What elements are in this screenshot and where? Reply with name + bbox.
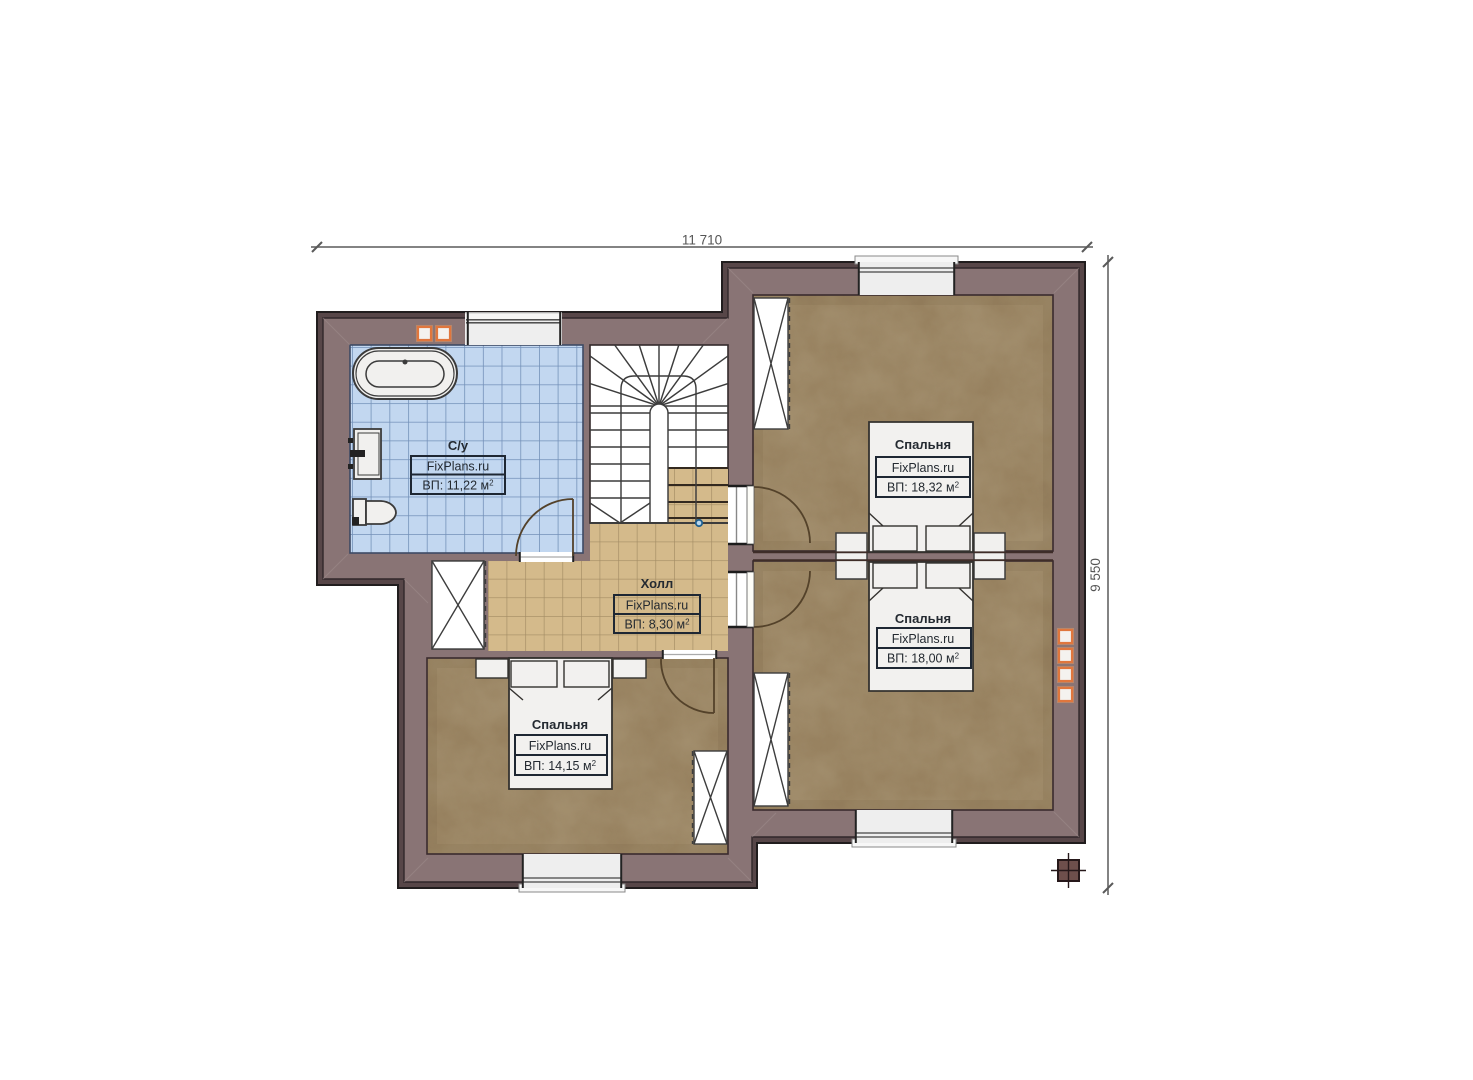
- svg-text:FixPlans.ru: FixPlans.ru: [892, 632, 955, 646]
- svg-text:ВП: 14,15 м2: ВП: 14,15 м2: [524, 759, 597, 773]
- svg-text:9 550: 9 550: [1088, 558, 1103, 592]
- svg-text:ВП: 11,22 м2: ВП: 11,22 м2: [422, 479, 494, 493]
- svg-text:11 710: 11 710: [682, 233, 722, 248]
- svg-text:ВП: 18,32 м2: ВП: 18,32 м2: [887, 481, 960, 495]
- svg-text:Спальня: Спальня: [532, 717, 588, 732]
- svg-text:FixPlans.ru: FixPlans.ru: [626, 599, 689, 613]
- svg-text:FixPlans.ru: FixPlans.ru: [529, 739, 592, 753]
- svg-text:ВП: 18,00 м2: ВП: 18,00 м2: [887, 652, 960, 666]
- svg-text:Холл: Холл: [641, 576, 674, 591]
- svg-text:С/у: С/у: [448, 438, 469, 453]
- svg-text:FixPlans.ru: FixPlans.ru: [427, 460, 490, 474]
- svg-text:Спальня: Спальня: [895, 437, 951, 452]
- svg-text:Спальня: Спальня: [895, 611, 951, 626]
- svg-text:FixPlans.ru: FixPlans.ru: [892, 461, 955, 475]
- svg-text:ВП: 8,30 м2: ВП: 8,30 м2: [624, 618, 690, 632]
